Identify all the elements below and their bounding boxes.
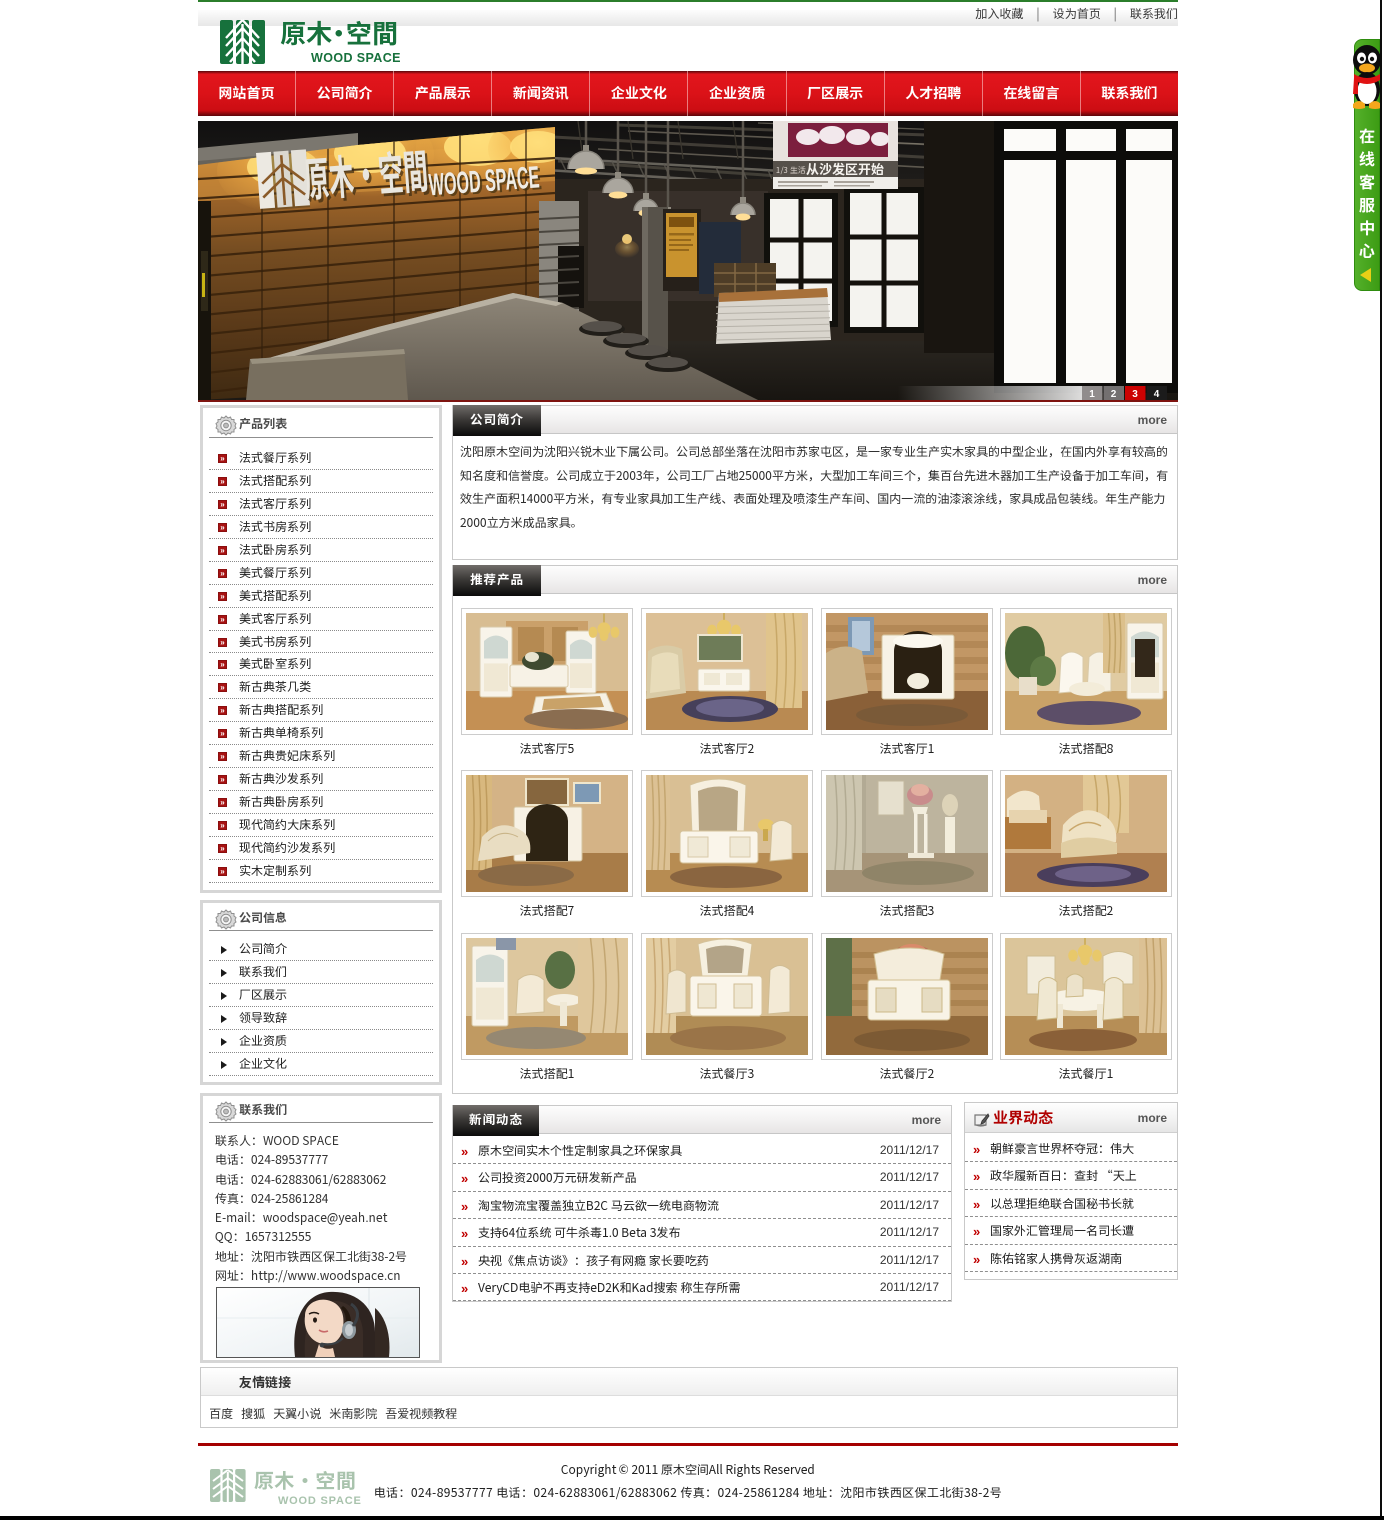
svg-text:原木·空間: 原木·空間 — [301, 134, 430, 210]
svg-text:从沙发区开始: 从沙发区开始 — [806, 159, 884, 178]
svg-text:1: 1 — [1089, 389, 1095, 400]
svg-text:3: 3 — [1132, 389, 1138, 400]
svg-text:4: 4 — [1154, 389, 1160, 400]
svg-text:原木·空間: 原木·空間 — [280, 18, 398, 51]
svg-text:2: 2 — [1111, 389, 1117, 400]
svg-text:WOOD SPACE: WOOD SPACE — [311, 51, 401, 65]
svg-text:1/3 生活: 1/3 生活 — [776, 165, 806, 176]
